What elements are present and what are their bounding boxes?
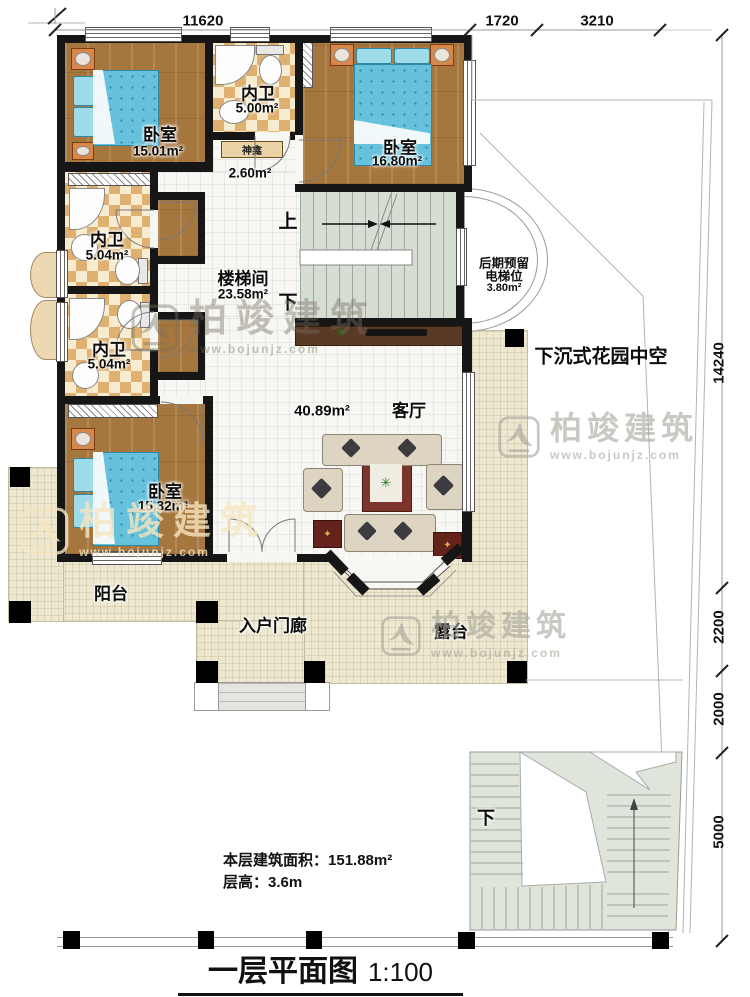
dim-top-1720: 1720 bbox=[485, 13, 518, 30]
toilet bbox=[117, 300, 142, 329]
window-bedbl-bottom bbox=[92, 551, 162, 565]
column bbox=[652, 932, 669, 949]
bed-pillow bbox=[394, 48, 430, 64]
floor-area-note: 本层建筑面积：151.88m² bbox=[223, 849, 392, 870]
sofa-bottom bbox=[344, 514, 436, 552]
wall-bedbl-right bbox=[205, 396, 213, 562]
column bbox=[196, 661, 218, 683]
bathtop-door-opening bbox=[255, 132, 290, 140]
bed-pillow bbox=[73, 458, 95, 492]
column bbox=[304, 661, 325, 683]
wall-bedtl-bottom bbox=[57, 162, 213, 172]
floor-height-value: 3.6m bbox=[268, 874, 302, 891]
shrine-niche-label: 神龛 bbox=[242, 142, 262, 157]
wall-bedtl-right bbox=[205, 35, 213, 168]
floor-plan-canvas: 神龛 ✳ ✦ ✦ ✳ bbox=[0, 0, 750, 997]
wall-bathtop-bottom-a bbox=[205, 132, 255, 140]
area-living: 40.89m² bbox=[294, 403, 350, 420]
marker-stair-up: 上 bbox=[278, 207, 297, 234]
wall-stair-right-a bbox=[456, 192, 464, 228]
wall-bottom-mid bbox=[297, 554, 333, 562]
bed-pillow bbox=[356, 48, 392, 64]
area-bedroom-tl: 15.01m² bbox=[133, 144, 183, 159]
area-elevator: 3.80m² bbox=[487, 282, 522, 294]
porch-terrace-slab bbox=[303, 556, 528, 684]
floor-height-label: 层高： bbox=[223, 874, 268, 891]
floor-area-label: 本层建筑面积： bbox=[223, 852, 328, 869]
area-bedroom-bl: 15.32m² bbox=[138, 499, 188, 514]
side-table-right: ✦ bbox=[433, 532, 462, 559]
drawing-title-scale: 1:100 bbox=[368, 957, 433, 987]
garden-stair bbox=[470, 752, 682, 930]
label-porch: 入户门廊 bbox=[239, 612, 307, 637]
wall-bedtr-bottom bbox=[295, 184, 472, 192]
bedtr-door-opening bbox=[295, 135, 303, 184]
wall-living-right-b bbox=[462, 510, 472, 562]
window-bedtr-right bbox=[463, 60, 476, 166]
bedbl-door-opening bbox=[160, 396, 203, 404]
drawing-title-text: 一层平面图 bbox=[208, 955, 358, 988]
column bbox=[507, 661, 527, 683]
column bbox=[505, 329, 524, 347]
wall-closet-low-top bbox=[152, 312, 205, 320]
area-stairwell: 23.58m² bbox=[218, 287, 268, 302]
balcony-slab-left bbox=[8, 467, 64, 622]
step-side-left bbox=[195, 683, 218, 710]
column bbox=[63, 931, 80, 949]
window-bathmid-left bbox=[56, 250, 68, 298]
closet-mid-floor bbox=[158, 200, 198, 256]
area-bath-mid: 5.04m² bbox=[86, 248, 129, 263]
dim-top-11620: 11620 bbox=[183, 13, 224, 30]
label-bedroom-tl: 卧室 bbox=[143, 121, 177, 146]
floor-height-note: 层高：3.6m bbox=[223, 871, 302, 892]
nightstand bbox=[330, 44, 354, 66]
wall-bedbl-top-a bbox=[57, 396, 160, 404]
dim-right-5000: 5000 bbox=[711, 815, 728, 848]
porch-entry-steps bbox=[194, 682, 330, 711]
label-living: 客厅 bbox=[392, 397, 426, 422]
bathlow-door-opening bbox=[150, 312, 158, 350]
wall-bath-bedtr bbox=[295, 35, 303, 135]
dim-top-3210: 3210 bbox=[580, 13, 613, 30]
watermark-url: www.bojunjz.com bbox=[550, 448, 698, 462]
wall-baths-right-a bbox=[150, 162, 158, 210]
toilet-tank bbox=[256, 45, 284, 55]
label-terrace: 露台 bbox=[434, 618, 468, 643]
dim-right-2000: 2000 bbox=[711, 692, 728, 725]
wardrobe-hatch-bathmid bbox=[68, 173, 156, 186]
bed-pillow bbox=[73, 107, 95, 137]
window-bedtr-top bbox=[330, 27, 432, 42]
nightstand bbox=[71, 428, 95, 450]
wardrobe-hatch-bedbl bbox=[68, 404, 158, 418]
marker-stair-down: 下 bbox=[278, 288, 297, 315]
window-living-right bbox=[462, 372, 475, 512]
dim-right-14240: 14240 bbox=[711, 342, 728, 384]
area-shrine: 2.60m² bbox=[229, 166, 272, 181]
entry-door-opening bbox=[227, 554, 297, 562]
shrine-niche: 神龛 bbox=[221, 141, 283, 158]
step-treads bbox=[218, 683, 306, 710]
side-table-left: ✦ bbox=[313, 520, 342, 548]
dim-right-2200: 2200 bbox=[711, 610, 728, 643]
label-sunken-garden: 下沉式花园中空 bbox=[534, 342, 667, 369]
stairwell-floor bbox=[300, 192, 456, 318]
sofa-long bbox=[322, 434, 442, 466]
watermark-brand: 柏竣建筑 bbox=[550, 412, 698, 444]
column bbox=[196, 601, 218, 623]
wall-left bbox=[57, 35, 65, 562]
coffee-table: ✳ bbox=[370, 464, 402, 502]
wall-tv bbox=[295, 318, 462, 326]
marker-garden-down: 下 bbox=[477, 804, 495, 830]
drawing-title: 一层平面图1:100 bbox=[178, 946, 463, 996]
wall-closet-mid-bottom bbox=[152, 256, 205, 264]
window-bathtop-top bbox=[230, 27, 270, 42]
wall-closet-mid-right bbox=[198, 200, 205, 256]
area-bath-top: 5.00m² bbox=[236, 101, 279, 116]
nightstand bbox=[72, 142, 94, 160]
floor-area-value: 151.88m² bbox=[328, 852, 392, 869]
area-bath-low: 5.04m² bbox=[88, 357, 131, 372]
column bbox=[9, 601, 31, 623]
wall-living-right-a bbox=[462, 318, 472, 372]
wall-baths-divider bbox=[57, 286, 158, 294]
nightstand bbox=[430, 44, 454, 66]
wall-closet-low-bottom bbox=[152, 372, 205, 380]
wall-closet-low-right bbox=[198, 320, 205, 372]
wall-stair-right-b bbox=[456, 284, 464, 318]
tv bbox=[365, 329, 427, 336]
column bbox=[10, 467, 30, 487]
bed-pillow bbox=[73, 76, 95, 106]
window-bedtl-top bbox=[85, 27, 182, 42]
wall-closet-mid-top bbox=[152, 192, 205, 200]
window-bathlow-left bbox=[56, 302, 68, 362]
step-side-right bbox=[306, 683, 329, 710]
plant-icon: ✳ bbox=[336, 328, 345, 339]
window-stair-right bbox=[456, 228, 467, 286]
area-bedroom-tr: 16.80m² bbox=[372, 154, 422, 169]
label-balcony: 阳台 bbox=[94, 580, 128, 605]
nightstand bbox=[71, 48, 95, 70]
bed-pillow bbox=[73, 494, 95, 528]
bathmid-door-opening bbox=[150, 210, 158, 248]
closet-low-floor bbox=[158, 320, 198, 372]
